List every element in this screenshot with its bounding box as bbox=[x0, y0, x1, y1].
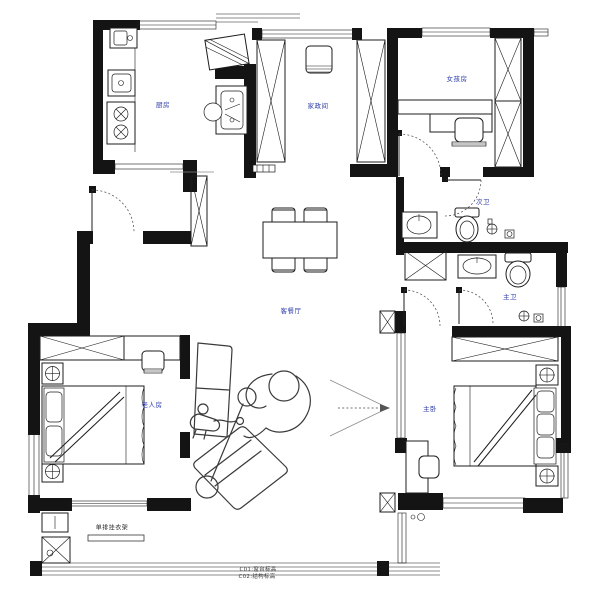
big-figure-sketch bbox=[211, 371, 310, 481]
corridor-door bbox=[401, 287, 440, 326]
column-bottom bbox=[380, 493, 395, 512]
master-bedroom-furniture bbox=[406, 365, 558, 493]
master-bath-door bbox=[456, 287, 493, 324]
second-bath-shower bbox=[487, 219, 497, 234]
girls-room-door bbox=[396, 130, 441, 176]
elder-sliding-door bbox=[70, 501, 147, 506]
girls-closet-bottom bbox=[495, 101, 521, 167]
kitchen-stove bbox=[107, 102, 135, 144]
bay-window-lines bbox=[216, 14, 300, 22]
column-top bbox=[380, 311, 395, 333]
master-nightstand-top bbox=[536, 365, 558, 385]
label-elder-room: 老人房 bbox=[142, 399, 163, 409]
sofa-person-sketch bbox=[190, 343, 310, 509]
master-bath-shower bbox=[519, 311, 543, 322]
master-chair bbox=[419, 456, 439, 478]
label-utility-room: 家政间 bbox=[308, 100, 329, 110]
master-nightstand-bottom bbox=[536, 466, 558, 486]
label-living-dining: 客餐厅 bbox=[281, 305, 302, 315]
label-kitchen: 厨房 bbox=[156, 99, 170, 109]
master-bed bbox=[454, 386, 556, 466]
chaise-sketch bbox=[194, 427, 288, 510]
kitchen-sink bbox=[108, 70, 135, 96]
girls-chair bbox=[455, 118, 483, 142]
label-note-2: C02:结构标高 bbox=[238, 572, 275, 580]
utility-closet-right bbox=[357, 40, 385, 162]
label-clothes-rack: 单排挂衣架 bbox=[96, 523, 129, 532]
duct-shaft bbox=[405, 251, 446, 280]
utility-closet-left bbox=[257, 40, 285, 162]
dining-set bbox=[263, 208, 337, 272]
kitchen-upper-cabinet bbox=[110, 28, 137, 48]
mop-basin bbox=[204, 86, 247, 134]
kitchen-door-track bbox=[115, 164, 183, 169]
balcony-symbols bbox=[411, 514, 425, 521]
master-bath-fixtures bbox=[458, 253, 543, 322]
label-second-bath: 次卫 bbox=[476, 196, 490, 206]
top-right-window bbox=[534, 29, 548, 36]
second-bath-fixtures bbox=[402, 208, 514, 242]
master-bath-window bbox=[558, 287, 565, 327]
fridge bbox=[205, 34, 249, 70]
label-girls-room: 女孩房 bbox=[447, 73, 468, 83]
windows bbox=[29, 14, 568, 575]
master-wardrobe bbox=[452, 337, 558, 361]
master-desk bbox=[406, 441, 439, 493]
girls-closet-top bbox=[495, 38, 521, 101]
small-vent bbox=[253, 165, 275, 172]
elder-nightstand-top bbox=[42, 363, 63, 384]
master-bottom-window bbox=[443, 498, 525, 508]
clothes-rack bbox=[88, 535, 144, 541]
floor-plan-canvas: 厨房 家政间 女孩房 次卫 主卫 客餐厅 老人房 主卧 单排挂衣架 C01:窗台… bbox=[0, 0, 600, 600]
elder-room-furniture bbox=[42, 351, 164, 482]
dining-table bbox=[263, 222, 337, 258]
girls-desk bbox=[398, 100, 492, 146]
panel-sketch bbox=[194, 343, 232, 437]
elder-room-window bbox=[29, 434, 39, 496]
master-bath-sink bbox=[458, 255, 496, 278]
view-arrow bbox=[330, 380, 390, 436]
cloak-cabinet bbox=[42, 513, 68, 532]
girls-room-window bbox=[422, 28, 490, 36]
kitchen-window bbox=[138, 21, 216, 29]
second-bath-drain bbox=[505, 230, 514, 238]
elder-bed bbox=[42, 386, 144, 464]
elder-stool bbox=[142, 351, 164, 373]
master-bath-toilet bbox=[505, 253, 531, 287]
second-bath-sink bbox=[402, 212, 437, 238]
cloak-closet bbox=[42, 537, 70, 563]
label-master-bath: 主卫 bbox=[503, 291, 517, 301]
label-master-bedroom: 主卧 bbox=[423, 403, 437, 413]
entry-door bbox=[89, 186, 134, 232]
utility-window bbox=[262, 30, 354, 38]
washing-machine bbox=[306, 46, 332, 73]
